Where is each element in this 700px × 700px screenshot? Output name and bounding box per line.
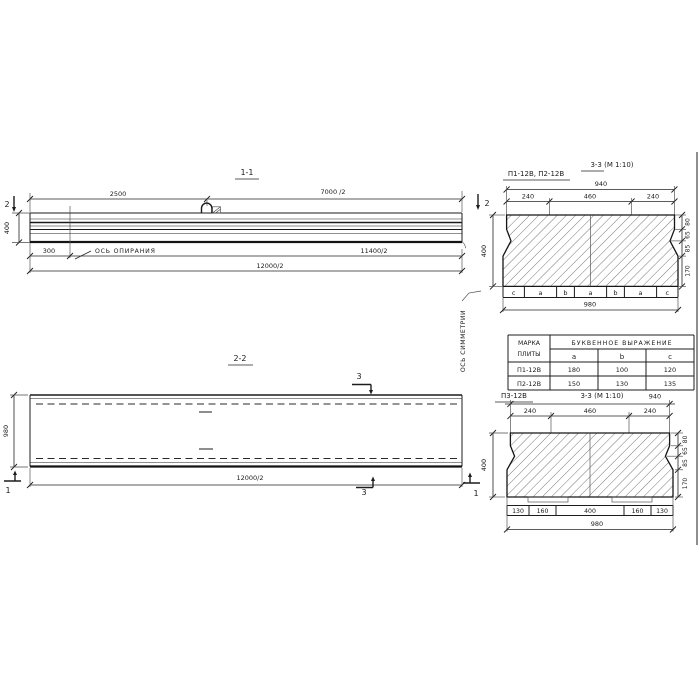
- dim-right-65-top: 65: [685, 231, 692, 239]
- table-col-b: b: [620, 353, 625, 361]
- section-marker-3-bottom: 3: [361, 488, 366, 497]
- dim-right-80-bottom: 80: [682, 435, 689, 443]
- marks-label-p1-p2: П1-12В, П2-12В: [508, 170, 565, 178]
- table-row2-a: 150: [568, 380, 580, 388]
- section-arrow-right: [476, 205, 480, 210]
- section-marker-3-top: 3: [356, 372, 361, 381]
- dim-980-top-section: 980: [584, 301, 596, 309]
- cross-section-3-3-p1-p2: П1-12В, П2-12В 3-3 (М 1:10) 940 240 460 …: [480, 161, 692, 313]
- strip-letter-c2: c: [666, 289, 670, 297]
- table-row1-c: 120: [664, 366, 676, 374]
- dim-right-85-top: 85: [685, 245, 692, 253]
- section-3-3-top-title: 3-3 (М 1:10): [590, 161, 633, 169]
- dim-240-left: 240: [522, 193, 534, 201]
- section-1-1-title: 1-1: [240, 168, 253, 177]
- strip-letter-a3: a: [639, 289, 643, 297]
- table-row: П1-12В 180 100 120: [517, 366, 676, 374]
- dim-980-plan: 980: [2, 425, 10, 437]
- dim-11400-2: 11400/2: [360, 247, 387, 255]
- dim-right-170-top: 170: [685, 265, 692, 277]
- section-2-2-title: 2-2: [233, 354, 246, 363]
- cross-section-3-3-p3: П3-12В 3-3 (М 1:10) 940 240 460 240 400: [480, 392, 689, 533]
- table-header-mark-line2: ПЛИТЫ: [517, 351, 540, 358]
- symmetry-axis-leader: [462, 291, 481, 301]
- section-3-3-bottom-title: 3-3 (М 1:10): [580, 392, 623, 400]
- table-header-mark-line1: МАРКА: [518, 340, 541, 347]
- dim-400-center: 400: [584, 508, 596, 515]
- strip-letter-c1: c: [512, 289, 516, 297]
- dim-7000-2: 7000 /2: [321, 188, 346, 196]
- dim-980-bottom-section: 980: [591, 520, 603, 528]
- parameters-table: МАРКА ПЛИТЫ БУКВЕННОЕ ВЫРАЖЕНИЕ a b c П1…: [508, 335, 694, 390]
- section-marker-2-right: 2: [484, 199, 489, 208]
- dim-160-left: 160: [537, 508, 549, 515]
- section-marker-1-left: 1: [5, 486, 10, 495]
- table-col-c: c: [668, 353, 672, 361]
- bottom-groove-right: [612, 497, 652, 502]
- section-arrow-left: [12, 207, 16, 212]
- section-marker-2-left: 2: [4, 200, 9, 209]
- dim-right-80-top: 80: [685, 218, 692, 226]
- bottom-dimension-strip: 130 160 400 160 130: [507, 506, 673, 516]
- dim-2500: 2500: [110, 190, 127, 198]
- support-axis-label: ОСЬ ОПИРАНИЯ: [95, 248, 156, 255]
- dim-460: 460: [584, 193, 596, 201]
- dim-940-bottom: 940: [649, 393, 661, 401]
- lifting-loop: [202, 203, 221, 213]
- strip-letter-a2: a: [589, 289, 593, 297]
- dim-400-top-section: 400: [480, 245, 488, 257]
- dim-right-65-bottom: 65: [682, 447, 689, 455]
- dim-240-right: 240: [647, 193, 659, 201]
- mark-label-p3: П3-12В: [501, 392, 527, 400]
- dim-160-right: 160: [632, 508, 644, 515]
- section-arrow-3-top: [369, 390, 373, 395]
- dim-130-left: 130: [512, 508, 524, 515]
- bottom-groove-left: [528, 497, 568, 502]
- section-arrow-1-right: [468, 473, 472, 478]
- dim-12000-2-plan: 12000/2: [236, 474, 263, 482]
- section-2-2-plan: 2-2 980 12000/2 3 3: [2, 291, 481, 498]
- engineering-drawing: 1-1 2500 7000 /2 2 2: [0, 0, 700, 700]
- dim-240-left-b: 240: [524, 407, 536, 415]
- table-row1-mark: П1-12В: [517, 366, 541, 374]
- table-row1-b: 100: [616, 366, 628, 374]
- dim-940-top: 940: [595, 180, 607, 188]
- dim-400-bottom-section: 400: [480, 459, 488, 471]
- dim-460-b: 460: [584, 407, 596, 415]
- table-row1-a: 180: [568, 366, 580, 374]
- section-1-1-elevation: 1-1 2500 7000 /2 2 2: [3, 168, 490, 274]
- table-row2-b: 130: [616, 380, 628, 388]
- strip-letter-b1: b: [563, 289, 567, 297]
- dim-right-85-bottom: 85: [682, 459, 689, 467]
- table-col-a: a: [572, 353, 576, 361]
- dim-right-170-bottom: 170: [682, 478, 689, 490]
- letter-dimension-strip: c a b a b a c: [503, 286, 678, 297]
- section-arrow-1-left: [13, 471, 17, 476]
- section-marker-1-right: 1: [473, 489, 478, 498]
- strip-letter-a1: a: [539, 289, 543, 297]
- table-row2-c: 135: [664, 380, 676, 388]
- table-row: П2-12В 150 130 135: [517, 380, 676, 388]
- dim-height-400: 400: [3, 222, 11, 234]
- dim-300: 300: [43, 247, 55, 255]
- dim-240-right-b: 240: [644, 407, 656, 415]
- dim-130-right: 130: [656, 508, 668, 515]
- symmetry-axis-label: ОСЬ СИММЕТРИИ: [460, 310, 467, 372]
- scanned-drawing-page: 1-1 2500 7000 /2 2 2: [0, 0, 700, 700]
- dim-12000-2: 12000/2: [256, 262, 283, 270]
- table-row2-mark: П2-12В: [517, 380, 541, 388]
- strip-letter-b2: b: [613, 289, 617, 297]
- section-arrow-3-bottom: [371, 477, 375, 482]
- table-header-expression: БУКВЕННОЕ ВЫРАЖЕНИЕ: [571, 340, 672, 347]
